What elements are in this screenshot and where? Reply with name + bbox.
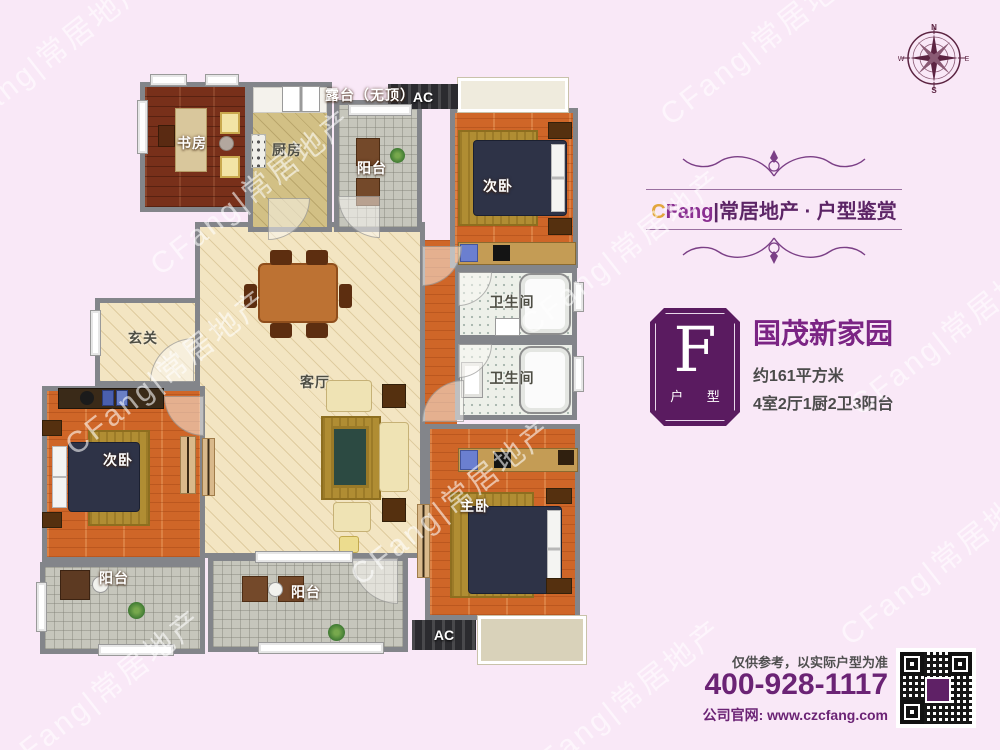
chair bbox=[460, 450, 478, 470]
tv-cabinet bbox=[417, 504, 430, 578]
desk bbox=[180, 436, 196, 494]
kitchen-sink bbox=[282, 86, 320, 112]
dining-chair bbox=[270, 323, 292, 338]
bathroom-2-label: 卫生间 bbox=[490, 368, 535, 388]
logo-divider-line bbox=[646, 189, 902, 190]
terrace-label: 露台（无顶） bbox=[325, 85, 415, 105]
window bbox=[573, 356, 584, 392]
plant bbox=[328, 624, 345, 641]
flyer-page: AC AC bbox=[0, 0, 1000, 750]
side-table bbox=[382, 498, 406, 522]
computer bbox=[494, 452, 511, 468]
logo-c: C bbox=[651, 201, 665, 223]
chair bbox=[220, 156, 240, 178]
compass-e: E bbox=[965, 56, 970, 63]
flourish-top-icon bbox=[669, 148, 879, 182]
living-label: 客厅 bbox=[300, 372, 330, 392]
qr-center-logo bbox=[925, 677, 951, 703]
compass-s: S bbox=[931, 86, 937, 94]
kitchen-label: 厨房 bbox=[272, 140, 302, 160]
window bbox=[255, 551, 353, 563]
dining-chair bbox=[306, 323, 328, 338]
logo-fang: Fang bbox=[666, 201, 714, 223]
watermark: CFang|常居地产 bbox=[649, 0, 871, 134]
logo-divider-line bbox=[646, 229, 902, 230]
logo-text: CFang|常居地产 · 户型鉴赏 bbox=[638, 192, 910, 227]
sofa bbox=[379, 422, 409, 492]
balcony-bl-label: 阳台 bbox=[99, 568, 129, 588]
window bbox=[98, 644, 174, 656]
bathroom-1-label: 卫生间 bbox=[490, 292, 535, 312]
ac-top-label: AC bbox=[413, 89, 433, 105]
website-text: 公司官网: www.czcfang.com bbox=[620, 705, 888, 725]
side-table bbox=[219, 136, 234, 151]
nightstand bbox=[546, 488, 572, 504]
qr-eye bbox=[900, 700, 924, 724]
desk-item bbox=[558, 450, 574, 465]
study-label: 书房 bbox=[177, 133, 207, 153]
brand-logo: CFang|常居地产 · 户型鉴赏 bbox=[638, 148, 910, 271]
ac-unit-bottom: AC bbox=[412, 620, 476, 650]
bay-window-bottom bbox=[478, 616, 586, 664]
balcony-top-label: 阳台 bbox=[357, 158, 387, 178]
nightstand bbox=[546, 578, 572, 594]
armchair bbox=[333, 502, 371, 532]
balcony-table bbox=[60, 570, 90, 600]
bedroom-tr-label: 次卧 bbox=[483, 176, 513, 196]
unit-type-label: 户 型 bbox=[670, 386, 730, 405]
window bbox=[137, 100, 148, 154]
window bbox=[258, 642, 384, 654]
window bbox=[90, 310, 101, 356]
nightstand bbox=[42, 512, 62, 528]
watermark: CFang|常居地产 bbox=[829, 466, 1000, 653]
desk-cabinet bbox=[158, 125, 175, 147]
compass-icon: N S E W bbox=[898, 22, 970, 94]
coffee-table bbox=[331, 426, 369, 488]
tv-cabinet bbox=[202, 438, 215, 496]
qr-code bbox=[896, 648, 976, 728]
balcony-bc-label: 阳台 bbox=[291, 582, 321, 602]
pillow bbox=[52, 446, 67, 508]
window bbox=[348, 104, 412, 116]
dining-chair bbox=[306, 250, 328, 265]
logo-rest: |常居地产 · 户型鉴赏 bbox=[713, 201, 896, 223]
dining-chair bbox=[244, 284, 257, 308]
chair bbox=[460, 244, 478, 262]
floor-plan: AC AC bbox=[30, 70, 595, 670]
property-title: 国茂新家园 bbox=[753, 312, 893, 352]
dining-chair bbox=[270, 250, 292, 265]
nightstand bbox=[42, 420, 62, 436]
bedroom-bl-label: 次卧 bbox=[103, 450, 133, 470]
bay-window-top bbox=[458, 78, 568, 112]
dining-chair bbox=[339, 284, 352, 308]
window bbox=[573, 282, 584, 312]
qr-eye bbox=[948, 652, 972, 676]
plant bbox=[128, 602, 145, 619]
round-table bbox=[268, 582, 283, 597]
phone-number: 400-928-1117 bbox=[620, 668, 888, 702]
pillow bbox=[551, 144, 565, 212]
window bbox=[205, 74, 239, 86]
sink bbox=[495, 318, 520, 336]
chair bbox=[220, 112, 240, 134]
dining-table bbox=[258, 263, 338, 323]
property-layout: 4室2厅1厨2卫3阳台 bbox=[753, 390, 894, 414]
pillow bbox=[547, 510, 561, 588]
master-label: 主卧 bbox=[460, 496, 490, 516]
side-table bbox=[382, 384, 406, 408]
hat bbox=[80, 391, 94, 405]
stove bbox=[251, 134, 266, 168]
clothes bbox=[116, 390, 128, 406]
qr-eye bbox=[900, 652, 924, 676]
ac-bottom-label: AC bbox=[434, 627, 454, 643]
window bbox=[150, 74, 187, 86]
unit-type-badge: F 户 型 bbox=[650, 308, 740, 426]
armchair bbox=[326, 380, 372, 412]
unit-type-letter: F bbox=[673, 314, 716, 386]
plant bbox=[390, 148, 405, 163]
compass-n: N bbox=[931, 23, 937, 32]
nightstand bbox=[548, 218, 572, 235]
flourish-bottom-icon bbox=[669, 232, 879, 266]
compass-w: W bbox=[898, 56, 905, 63]
clothes bbox=[102, 390, 114, 406]
window bbox=[36, 582, 47, 632]
nightstand bbox=[548, 122, 572, 139]
balcony-chair bbox=[242, 576, 268, 602]
unit-type-badge-inner: F 户 型 bbox=[655, 313, 735, 421]
entry-label: 玄关 bbox=[128, 328, 158, 348]
computer bbox=[493, 245, 510, 261]
property-area: 约161平方米 bbox=[753, 362, 844, 386]
